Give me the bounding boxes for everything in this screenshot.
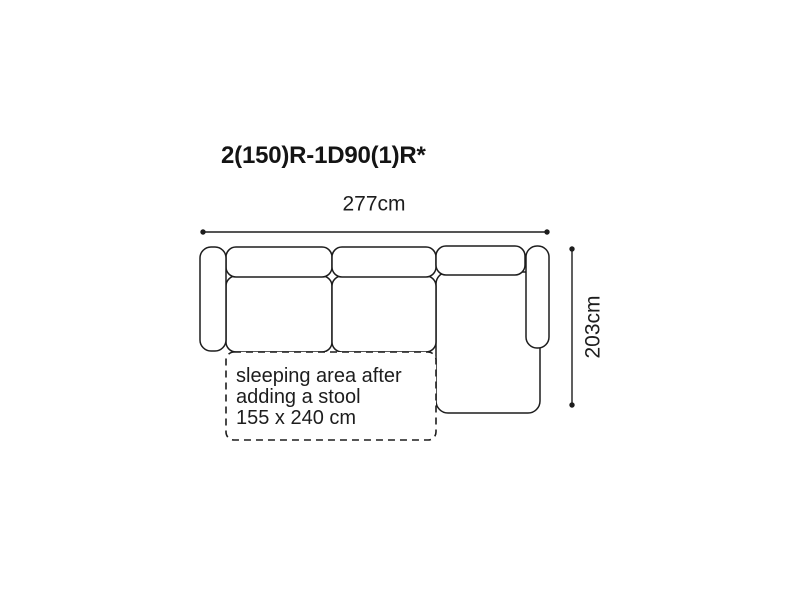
backrest-cushion-1-shape [226,247,332,277]
seat-cushion-1-shape [226,276,332,352]
sleeping-area-note-line-2: adding a stool [236,387,402,408]
sleeping-area-note-line-3: 155 x 240 cm [236,408,402,429]
sofa-schematic-drawing [0,0,800,600]
armrest-right-shape [526,246,549,348]
armrest-left-shape [200,247,226,351]
backrest-cushion-3-shape [436,246,525,275]
height-dimension-label: 203cm [583,295,604,358]
seat-cushion-2-shape [332,276,436,352]
sofa-dimension-diagram: 2(150)R-1D90(1)R* 277cm 203cm sleeping a… [0,0,800,600]
height-dim-endpoint-top [569,246,574,251]
sleeping-area-note: sleeping area after adding a stool 155 x… [236,366,402,429]
sleeping-area-note-line-1: sleeping area after [236,366,402,387]
height-dim-endpoint-bottom [569,402,574,407]
chaise-seat-shape [436,272,540,413]
width-dim-endpoint-right [544,229,549,234]
width-dim-endpoint-left [200,229,205,234]
width-dimension-label: 277cm [342,194,405,215]
backrest-cushion-2-shape [332,247,436,277]
model-code-title: 2(150)R-1D90(1)R* [221,143,426,169]
